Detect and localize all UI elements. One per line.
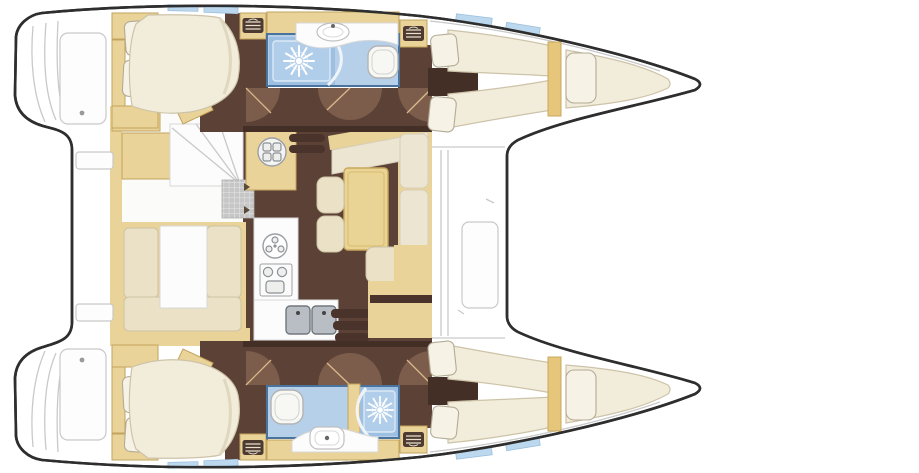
foredeck-locker — [462, 222, 498, 308]
floor-plan-drawing — [0, 0, 919, 473]
stool — [317, 216, 344, 252]
round-sink-icon — [263, 234, 287, 258]
salon-dinette — [118, 222, 246, 336]
toilet — [368, 46, 398, 78]
port-bathroom — [267, 12, 399, 86]
shower — [357, 387, 398, 436]
dinette-table — [160, 226, 207, 308]
toilet — [271, 390, 303, 424]
starboard-bathroom — [267, 384, 399, 460]
stove-burner-icon — [260, 264, 292, 296]
catamaran-floor-plan — [0, 0, 919, 473]
nav-cabinet — [122, 133, 170, 179]
round-sink-icon — [258, 138, 286, 166]
salon-door-swing — [170, 124, 243, 186]
dining-table — [344, 168, 388, 250]
salon — [110, 106, 432, 354]
stool — [317, 177, 344, 213]
